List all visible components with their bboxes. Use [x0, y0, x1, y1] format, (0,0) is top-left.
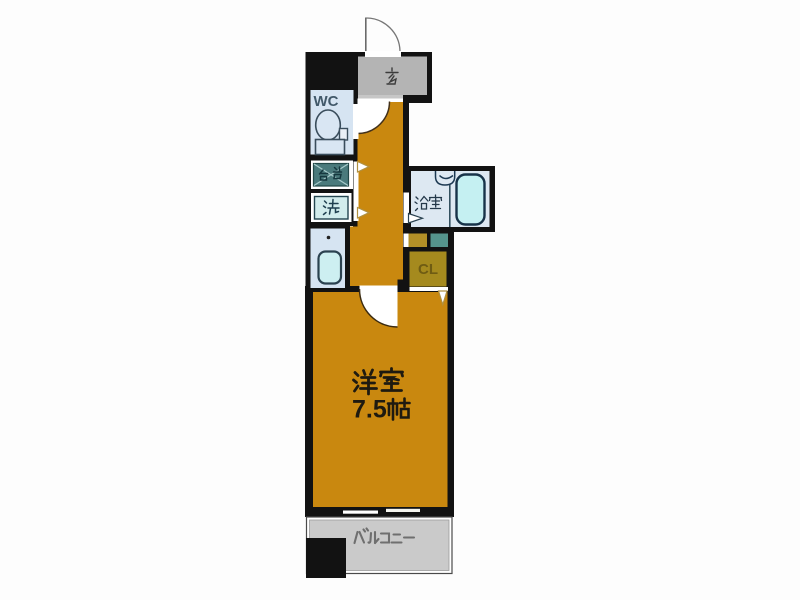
svg-text:WC: WC	[314, 93, 339, 110]
svg-text:7.5: 7.5	[352, 396, 387, 424]
svg-text:CL: CL	[418, 261, 438, 278]
